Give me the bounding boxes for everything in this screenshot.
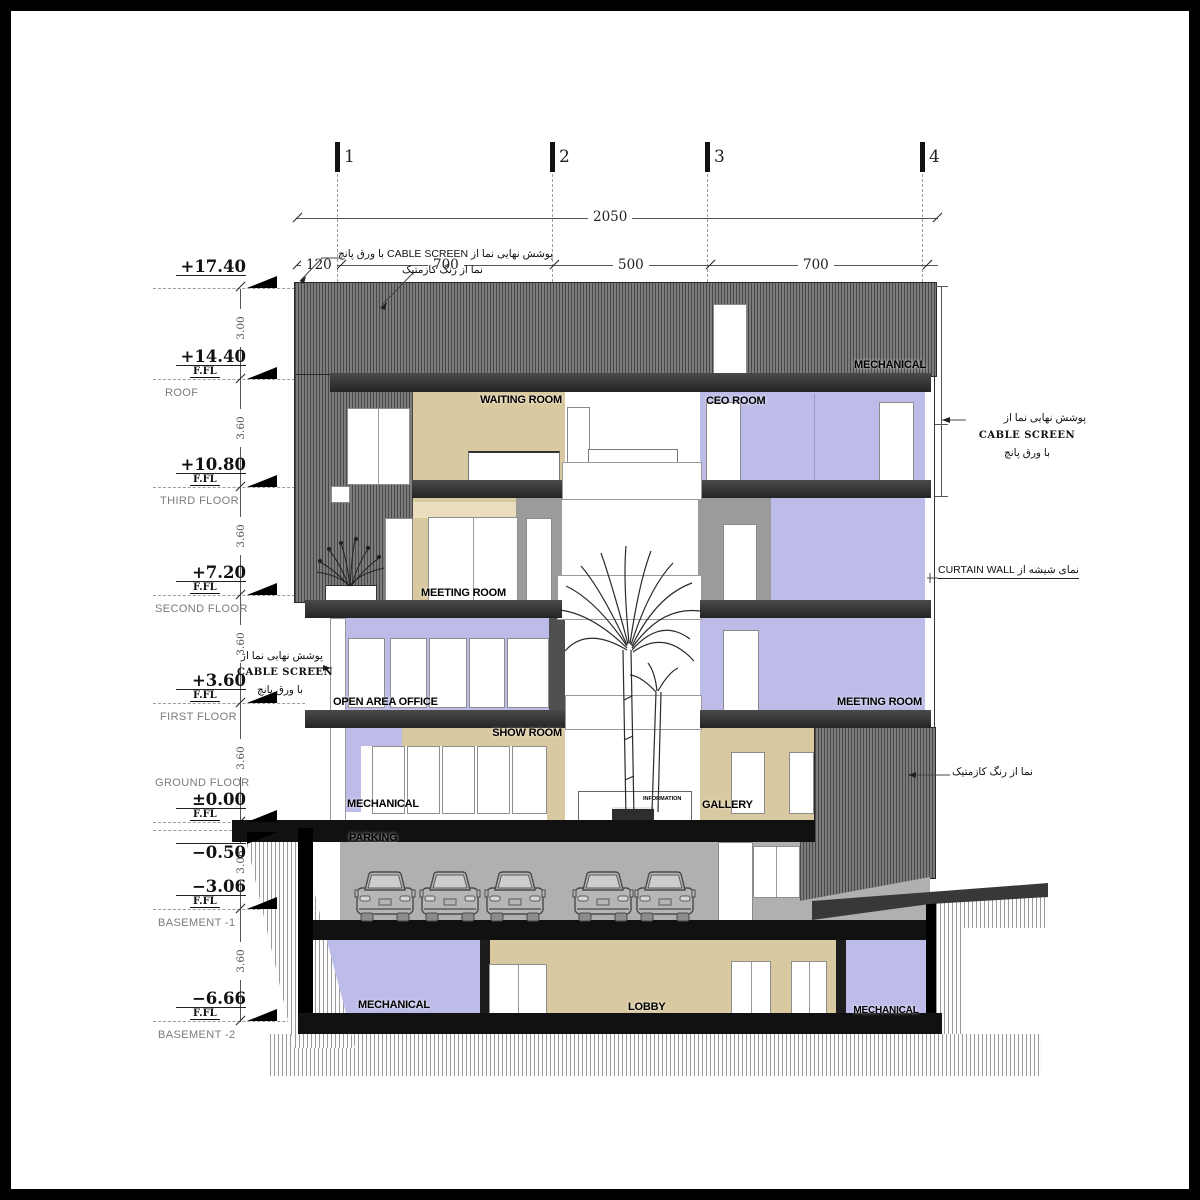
annotation-top-paint: نما از رنگ کازمتیک	[402, 264, 483, 276]
atrium-parapet	[562, 462, 702, 500]
level-value: +10.80	[176, 456, 246, 474]
floor-name: THIRD FLOOR	[160, 495, 239, 507]
level-marker-icon	[247, 810, 277, 822]
floor-height-dim: 3.60	[235, 409, 247, 447]
level-value: +3.60	[176, 672, 246, 690]
floor-name: ROOF	[165, 387, 198, 399]
ffl-label: F.FL	[190, 1008, 220, 1020]
dim-tick	[934, 496, 948, 497]
ground-slab	[232, 820, 815, 842]
floor-name: BASEMENT -1	[158, 917, 236, 929]
door	[713, 304, 747, 376]
room-label-mechanical-gf: MECHANICAL	[347, 798, 419, 810]
ffl-label: F.FL	[190, 582, 220, 594]
level-marker-icon	[247, 475, 277, 487]
level-marker-icon	[247, 367, 277, 379]
room-label-mechanical-b2-left: MECHANICAL	[358, 999, 430, 1011]
room-label-show-room: SHOW ROOM	[450, 727, 562, 739]
building-edge	[934, 375, 935, 728]
level-marker-icon	[247, 276, 277, 288]
room-label-meeting-room-1f: MEETING ROOM	[820, 696, 922, 708]
level-value: −6.66	[176, 990, 246, 1008]
floor-slab	[700, 600, 931, 618]
window	[442, 746, 475, 814]
grid-axis-bar-2	[550, 142, 555, 172]
annotation-top-cable-screen: پوشش نهایی نما از CABLE SCREEN با ورق پا…	[338, 248, 553, 260]
grid-axis-bar-4	[920, 142, 925, 172]
level-value: +7.20	[176, 564, 246, 582]
dim-segment-label: 500	[613, 257, 649, 273]
floor-height-dim: 3.00	[235, 309, 247, 347]
grid-axis-number: 4	[929, 147, 940, 167]
level-value: −0.50	[176, 843, 246, 861]
level-line	[153, 379, 305, 380]
dim-tick	[934, 286, 948, 287]
ffl-label: F.FL	[190, 896, 220, 908]
window	[469, 638, 505, 708]
dim-segment-label: 700	[798, 257, 834, 273]
window	[507, 638, 549, 708]
dim-segment-label: 120	[301, 257, 337, 273]
mechanical-b2-right-area	[846, 940, 928, 1015]
floor-name: BASEMENT -2	[158, 1029, 236, 1041]
annotation-right-paint: نما از رنگ کازمتیک	[952, 766, 1033, 778]
annotation-left-cable-2: CABLE SCREEN	[237, 667, 323, 678]
room-label-ceo-room: CEO ROOM	[706, 395, 766, 407]
ground-hatch	[270, 1034, 1042, 1076]
wall-strip	[547, 746, 565, 822]
annotation-right-cable-2: CABLE SCREEN	[968, 430, 1086, 441]
level-value: +14.40	[176, 348, 246, 366]
floor-slab	[305, 600, 562, 618]
leader-arrow	[942, 417, 950, 423]
cable-screen-extent-line	[941, 286, 942, 497]
roof-slab	[330, 373, 931, 392]
retaining-wall	[298, 828, 313, 1033]
dim-total-label: 2050	[588, 209, 632, 225]
door	[385, 518, 413, 602]
annotation-left-cable-3: با ورق پانچ	[237, 684, 323, 696]
atrium-parapet	[565, 695, 702, 730]
annotation-right-cable-3: با ورق پانچ	[968, 447, 1086, 459]
curtain-wall-glazing	[771, 498, 925, 600]
ffl-label: F.FL	[190, 690, 220, 702]
grid-axis-number: 2	[559, 147, 570, 167]
basement2-slab	[298, 1013, 942, 1034]
floor-slab	[700, 710, 931, 728]
grid-axis-number: 1	[344, 147, 355, 167]
ffl-label: F.FL	[190, 474, 220, 486]
door	[526, 518, 552, 602]
floor-name: FIRST FLOOR	[160, 711, 237, 723]
floor-name: GROUND FLOOR	[155, 777, 250, 789]
grid-axis-bar-3	[705, 142, 710, 172]
floor-slab	[700, 480, 931, 498]
door	[723, 524, 757, 602]
level-line	[153, 288, 305, 289]
basement1-slab	[313, 920, 935, 940]
ffl-label: F.FL	[190, 366, 220, 378]
level-value: +17.40	[176, 258, 246, 276]
room-label-mechanical-roof: MECHANICAL	[826, 359, 926, 371]
door	[706, 402, 741, 491]
window	[477, 746, 510, 814]
room-label-gallery: GALLERY	[702, 799, 753, 811]
grid-axis-number: 3	[714, 147, 725, 167]
level-line	[153, 595, 305, 596]
room-label-mechanical-b2-right: MECHANICAL	[845, 1005, 927, 1016]
level-value: ±0.00	[176, 791, 246, 809]
door	[718, 842, 753, 922]
floor-height-dim: 3.60	[235, 517, 247, 555]
wall-band	[413, 502, 520, 518]
door	[723, 630, 759, 712]
double-door	[731, 961, 771, 1017]
room-label-parking: PARKING	[349, 832, 398, 844]
level-line	[153, 1021, 305, 1022]
door	[879, 402, 914, 491]
room-label-waiting-room: WAITING ROOM	[450, 394, 562, 406]
annotation-curtain-wall: نمای شیشه از CURTAIN WALL	[938, 564, 1079, 579]
floor-name: SECOND FLOOR	[155, 603, 248, 615]
floor-slab	[412, 480, 562, 498]
door	[567, 407, 590, 466]
level-line	[153, 487, 305, 488]
annotation-left-cable-1: پوشش نهایی نما از	[237, 650, 323, 662]
level-value: −3.06	[176, 878, 246, 896]
room-label-meeting-room-2f: MEETING ROOM	[421, 587, 506, 599]
room-label-lobby: LOBBY	[628, 1001, 666, 1013]
facade-opening	[331, 486, 350, 503]
door	[789, 752, 814, 814]
window	[347, 408, 410, 485]
earth-hatch	[964, 896, 1048, 928]
window	[512, 746, 547, 814]
atrium-parapet	[557, 575, 702, 620]
ffl-label: F.FL	[190, 809, 220, 821]
level-line	[153, 703, 305, 704]
floor-slab	[305, 710, 565, 728]
double-door	[791, 961, 827, 1017]
dim-tick	[934, 424, 948, 425]
level-marker-icon	[247, 583, 277, 595]
column	[836, 940, 846, 1015]
room-label-information: INFORMATION	[643, 796, 681, 802]
section-drawing: 1 2 3 4 2050 120 700 500 700 3.00 3.60 3…	[0, 0, 1200, 1200]
double-door	[489, 964, 547, 1017]
annotation-right-cable-1: پوشش نهایی نما از	[968, 412, 1086, 424]
level-marker-icon	[247, 1009, 277, 1021]
floor-height-dim: 3.60	[235, 942, 247, 980]
window	[753, 846, 800, 898]
wall-divider	[814, 394, 815, 492]
grid-axis-bar-1	[335, 142, 340, 172]
room-label-open-area-office: OPEN AREA OFFICE	[333, 696, 438, 708]
floor-height-dim: 3.60	[235, 739, 247, 777]
